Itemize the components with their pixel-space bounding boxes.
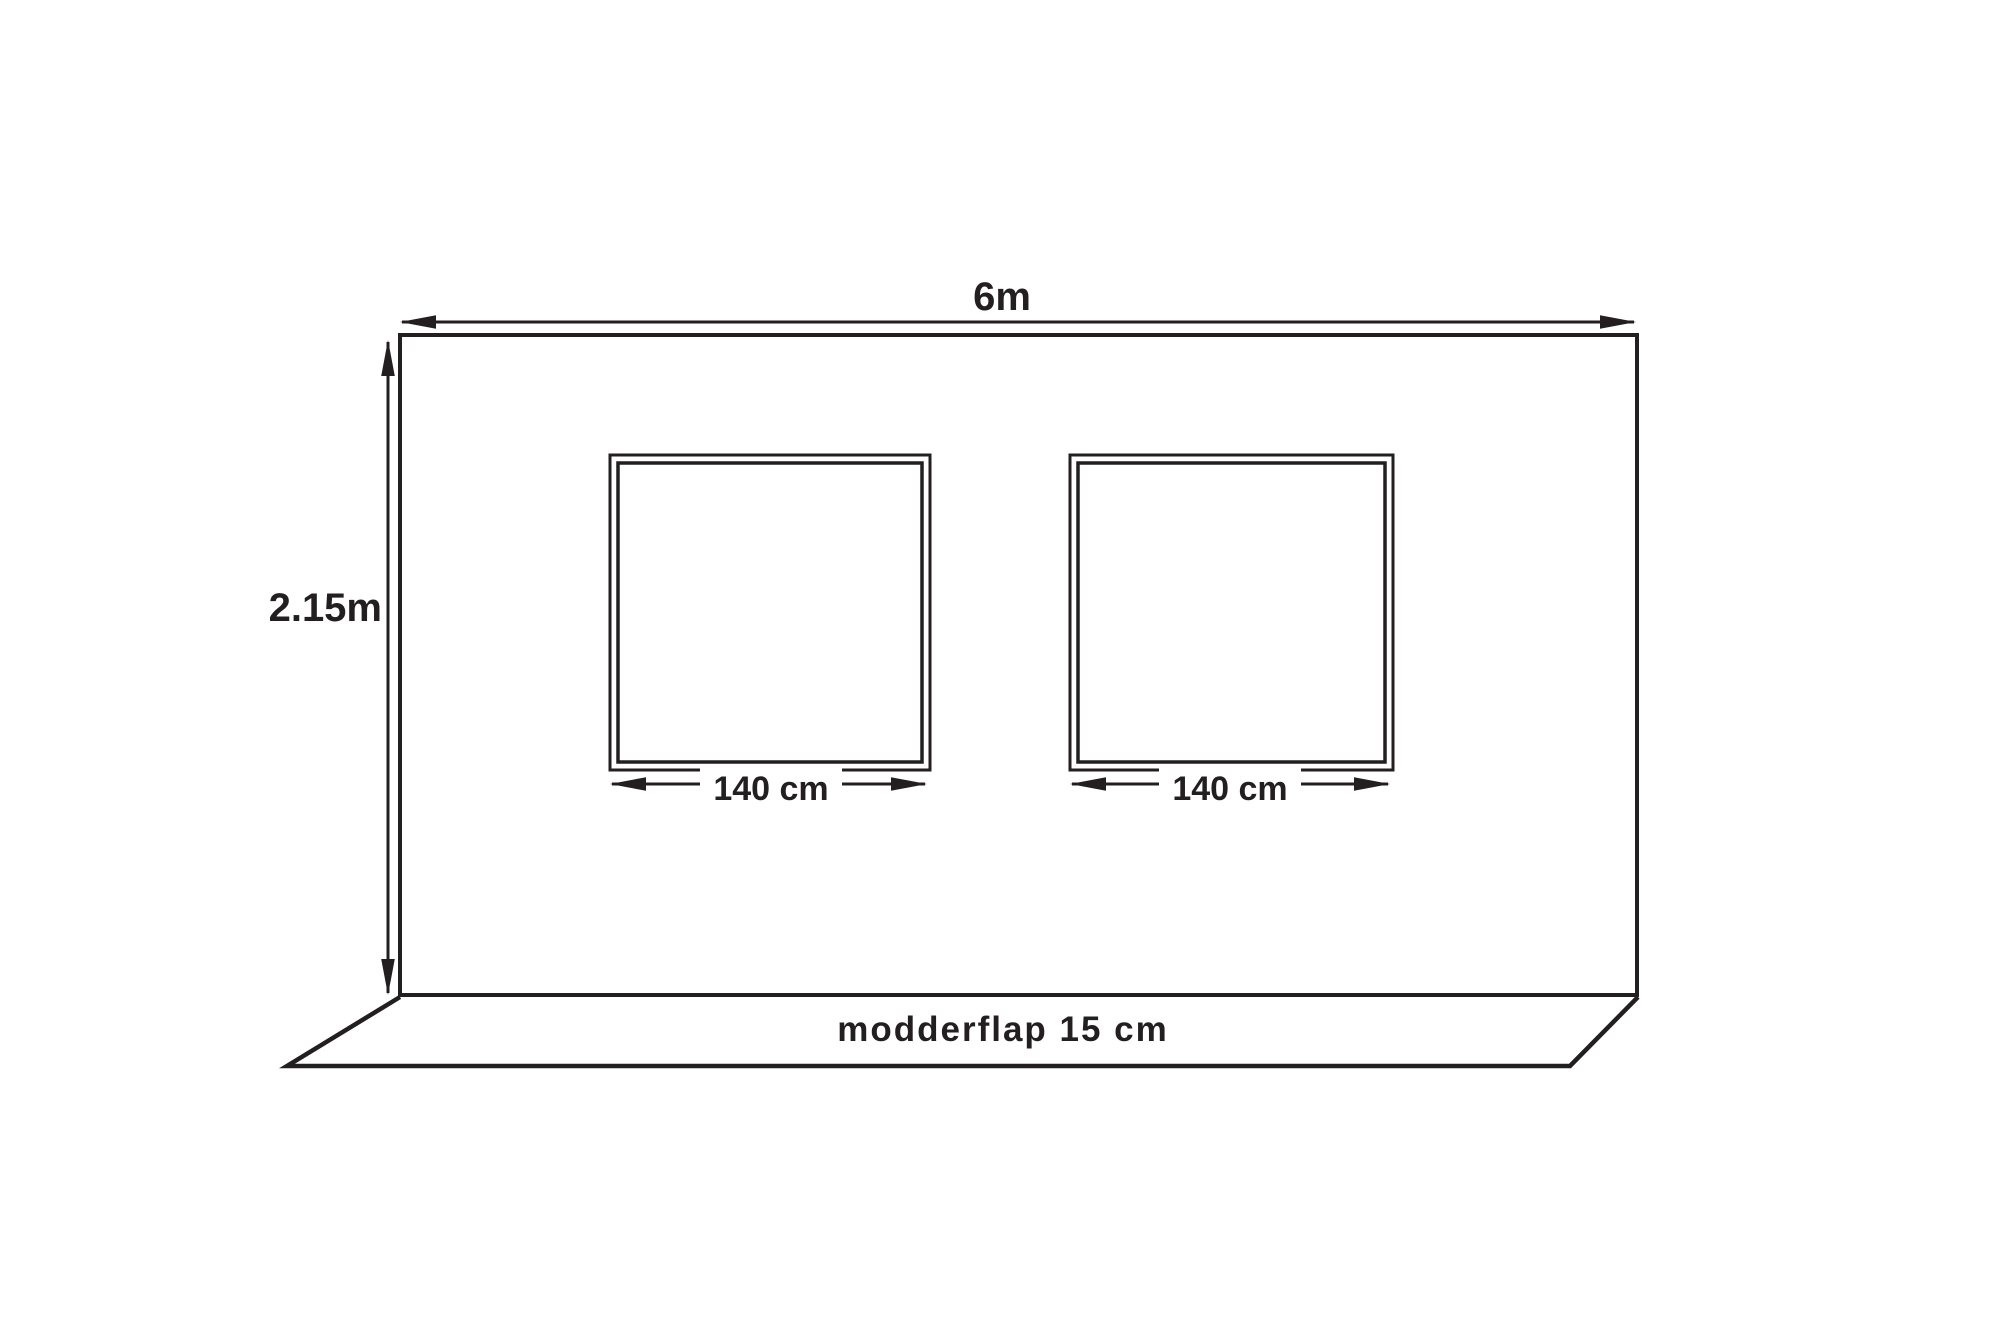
- window-right-outer-frame: [1070, 455, 1393, 770]
- width-dimension-label: 6m: [973, 275, 1031, 319]
- mudflap-label: modderflap 15 cm: [837, 1010, 1169, 1049]
- window-left-outer-frame: [610, 455, 930, 770]
- height-dimension-label: 2.15m: [269, 586, 382, 630]
- wall-outline: [400, 335, 1637, 995]
- wall-dimension-diagram: 6m 2.15m 140 cm 140 cm modderflap 15 cm: [0, 0, 2000, 1333]
- window-left-dimension-label: 140 cm: [713, 770, 828, 808]
- drawing-canvas: 6m 2.15m 140 cm 140 cm modderflap 15 cm: [0, 0, 2000, 1333]
- window-right-dimension-label: 140 cm: [1172, 770, 1287, 808]
